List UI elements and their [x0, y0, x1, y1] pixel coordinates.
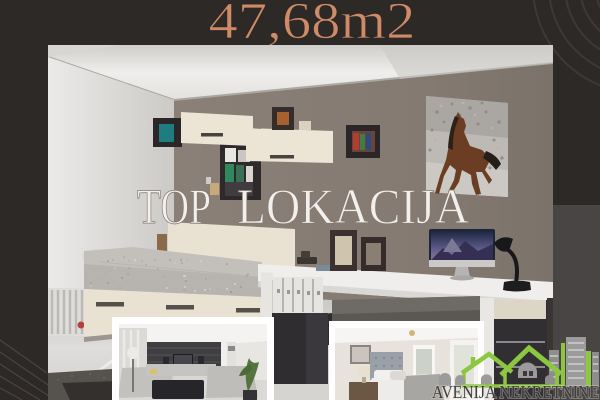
svg-text:TOP: TOP: [137, 178, 211, 234]
svg-text:AVENIJA NEKRETNINE: AVENIJA NEKRETNINE: [432, 382, 599, 400]
svg-text:47,68m2: 47,68m2: [209, 0, 416, 50]
svg-text:LOKACIJA: LOKACIJA: [237, 178, 469, 234]
